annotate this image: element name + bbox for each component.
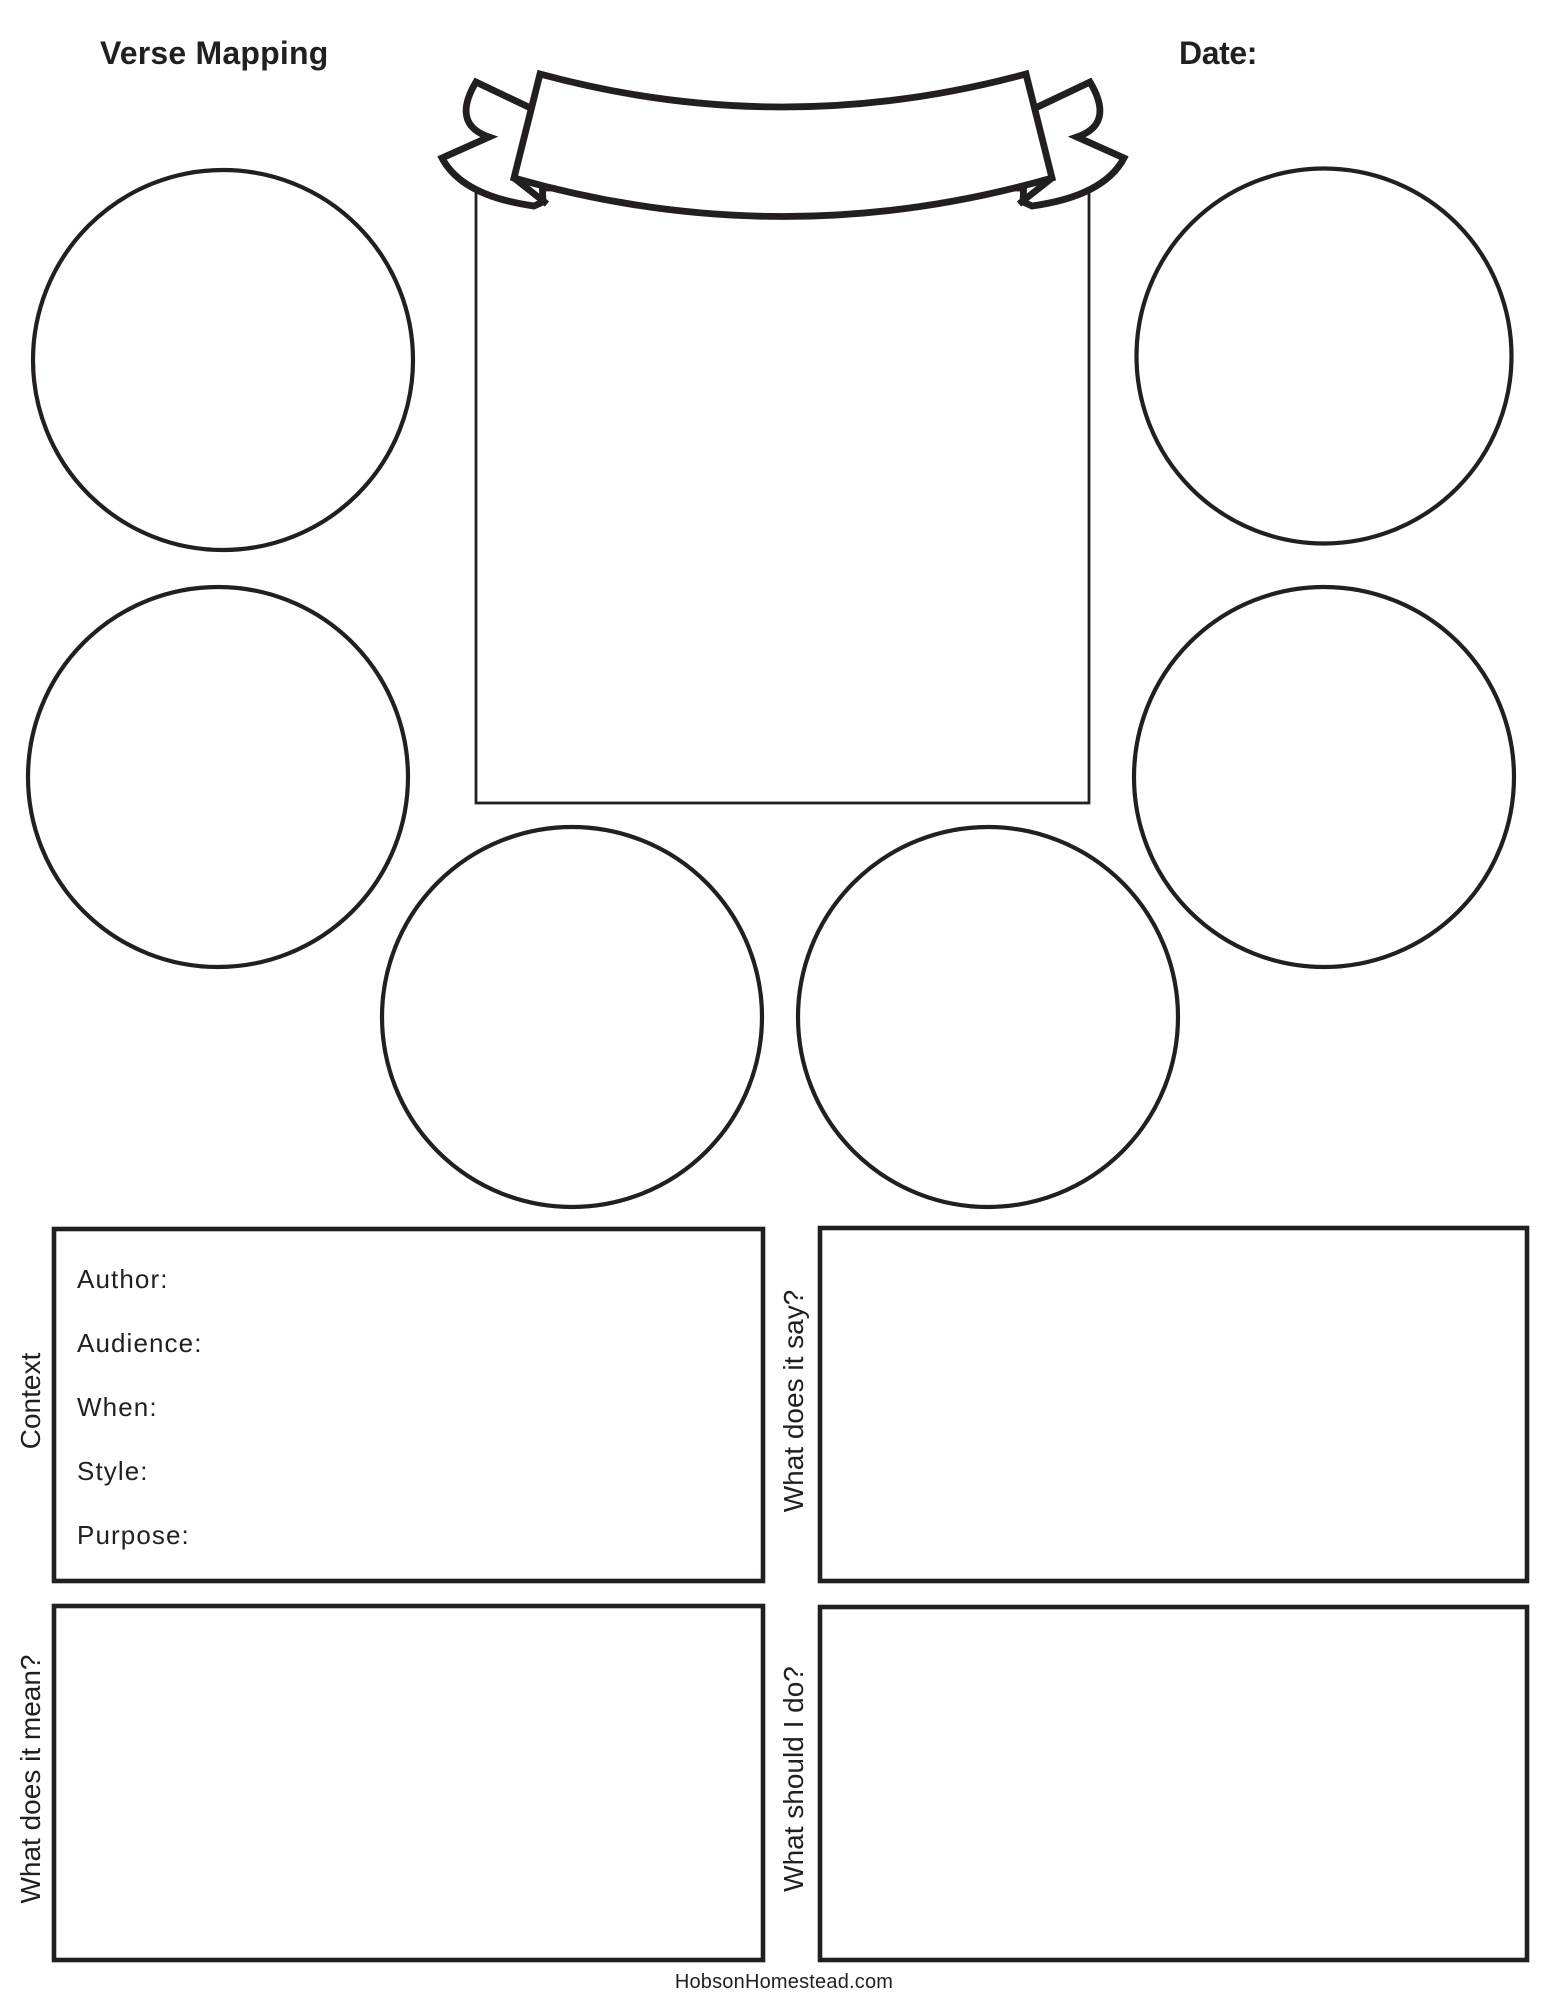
svg-text:Verse Mapping: Verse Mapping	[100, 35, 328, 71]
svg-text:Context: Context	[15, 1353, 46, 1450]
svg-text:Purpose:: Purpose:	[77, 1520, 190, 1550]
svg-text:What should I do?: What should I do?	[778, 1666, 809, 1892]
svg-text:HobsonHomestead.com: HobsonHomestead.com	[675, 1971, 893, 1993]
svg-text:Date:: Date:	[1179, 35, 1257, 71]
svg-text:What does it say?: What does it say?	[778, 1290, 809, 1513]
svg-text:Style:: Style:	[77, 1456, 149, 1486]
svg-text:When:: When:	[77, 1392, 158, 1422]
svg-text:What does it mean?: What does it mean?	[15, 1654, 46, 1903]
svg-text:Author:: Author:	[77, 1264, 169, 1294]
svg-text:Audience:: Audience:	[77, 1328, 203, 1358]
